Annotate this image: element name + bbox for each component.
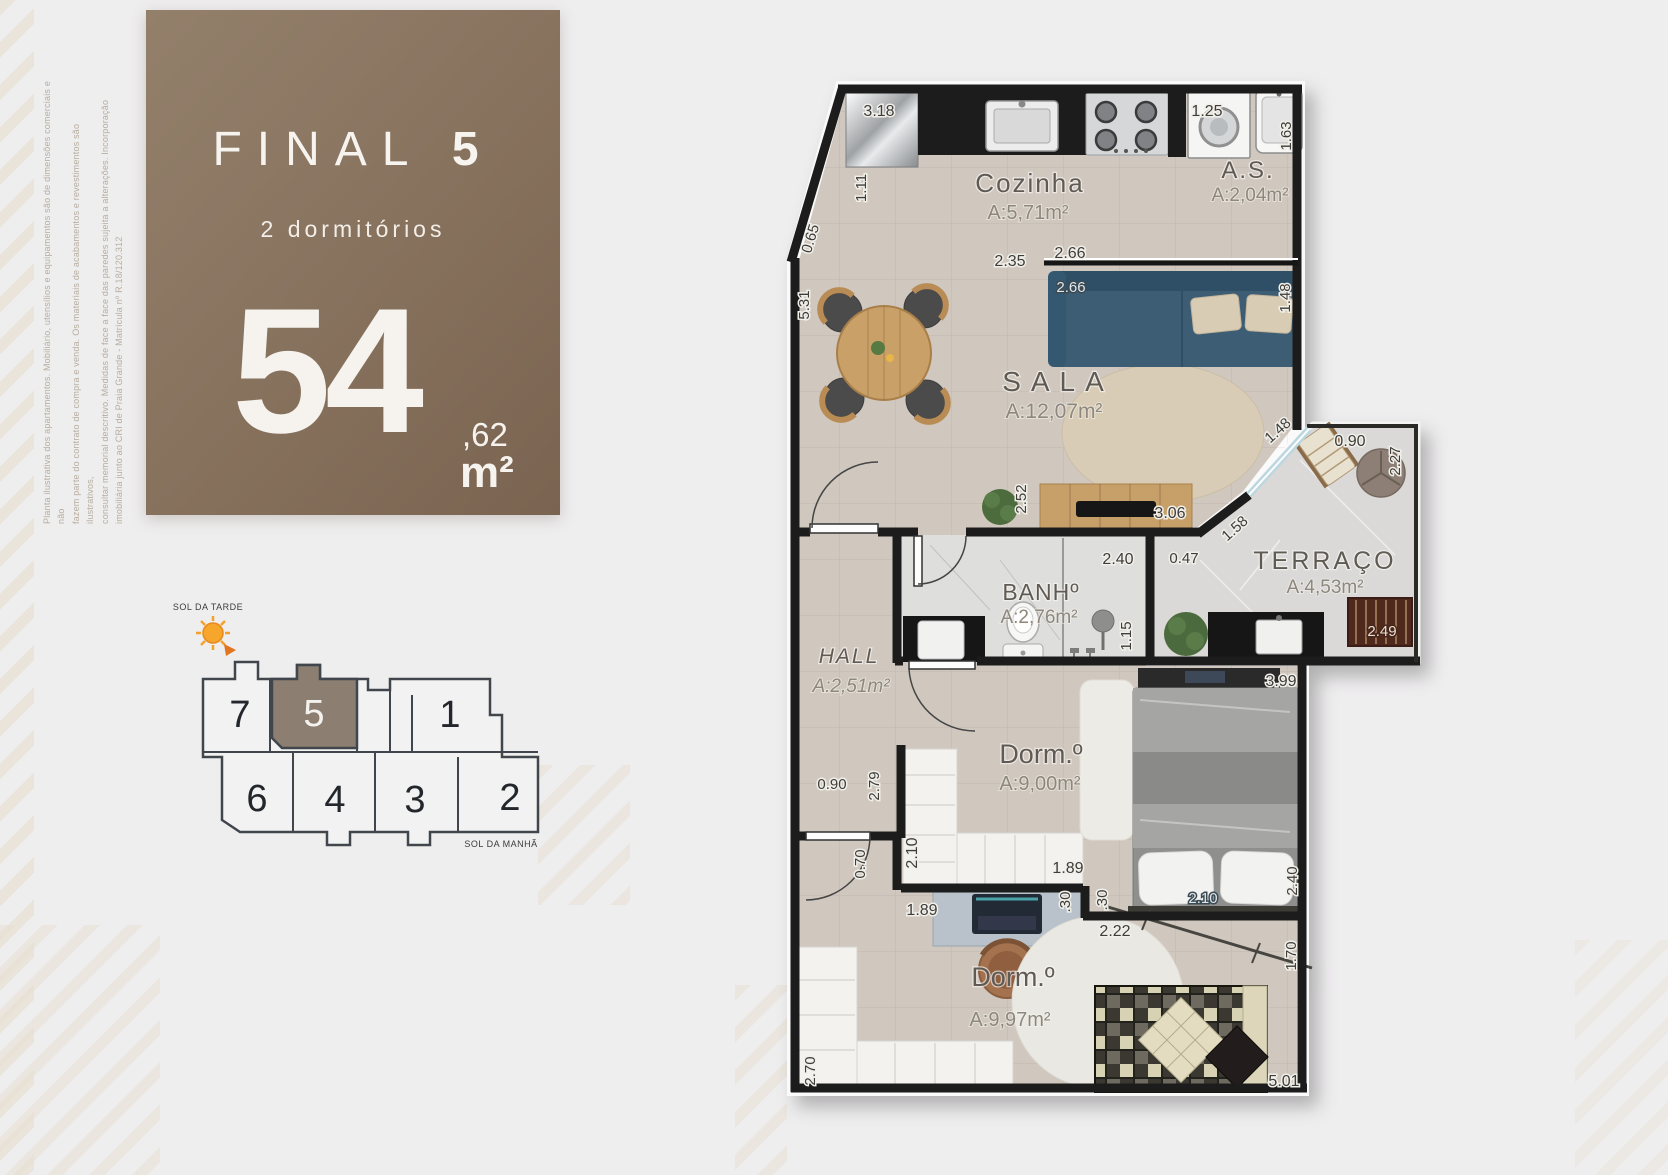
room-label-sala: SALA — [1002, 366, 1114, 397]
dim-tv-wall: 3.06 — [1154, 505, 1185, 522]
dim-terrace-right: 2.27 — [1387, 446, 1404, 475]
room-area-servico: A:2,04m² — [1211, 185, 1288, 206]
dim-dorm2-span: 2.22 — [1099, 923, 1130, 940]
dim-dorm2-left: 2.70 — [802, 1056, 819, 1085]
kitchen-faucet — [1019, 101, 1026, 108]
dim-service-side: 1.63 — [1278, 121, 1295, 150]
room-label-hall: HALL — [819, 645, 880, 668]
dim-dorm2-right: 1.70 — [1283, 941, 1300, 970]
dim-dorm1-width: 3.99 — [1265, 673, 1296, 690]
room-area-banheiro: A:2,76m² — [1000, 607, 1077, 628]
dim-kitchen-fridge: 3.18 — [863, 103, 894, 120]
dim-sofa-wall: 2.66 — [1056, 279, 1085, 296]
dim-terrace-wall: 0.47 — [1169, 550, 1198, 567]
kitchen-sink-basin — [994, 109, 1050, 143]
dim-barbecue: 2.49 — [1367, 623, 1396, 640]
dim-washer: 1.25 — [1191, 103, 1222, 120]
dim-wardrobe1-depth: 2.10 — [904, 837, 921, 868]
dim-sala-depth: 2.52 — [1013, 484, 1030, 513]
room-area-cozinha: A:5,71m² — [987, 202, 1068, 224]
dim-step-a: .30 — [1057, 892, 1074, 913]
room-area-dorm1: A:9,00m² — [999, 773, 1080, 795]
dim-sala-right: 1.48 — [1277, 283, 1294, 312]
dim-bed1-length: 2.10 — [1188, 890, 1217, 907]
bed-dorm1 — [1128, 688, 1305, 918]
room-area-terraco: A:4,53m² — [1286, 577, 1363, 598]
room-area-dorm2: A:9,97m² — [969, 1009, 1050, 1031]
dim-wardrobe1-width: 1.89 — [1052, 860, 1083, 877]
dim-dorm1-entry: 2.79 — [866, 771, 883, 800]
dim-kitchen-span-a: 2.35 — [994, 253, 1025, 270]
dim-hall-width: 0.90 — [817, 776, 846, 793]
bath-door — [914, 536, 922, 586]
plant-terrace — [1164, 612, 1208, 656]
tv — [1076, 501, 1156, 517]
dim-kitchen-span-b: 2.66 — [1054, 245, 1085, 262]
entry-door — [810, 524, 878, 533]
dorm1-door — [909, 661, 975, 669]
room-area-sala: A:12,07m² — [1006, 400, 1103, 423]
washing-machine-drum — [1210, 118, 1228, 136]
sofa-back — [1048, 271, 1300, 291]
room-label-servico: A.S. — [1221, 157, 1274, 184]
counter-divider — [1168, 89, 1186, 157]
room-label-terraco: TERRAÇO — [1253, 547, 1396, 575]
room-label-cozinha: Cozinha — [975, 168, 1084, 198]
dorm2-door — [806, 832, 870, 840]
dim-dorm2-width: 5.01 — [1268, 1073, 1299, 1090]
dim-bath-width: 2.40 — [1102, 551, 1133, 568]
room-label-dorm2: Dorm.º — [971, 962, 1054, 992]
room-label-dorm1: Dorm.º — [999, 739, 1082, 769]
dim-kitchen-fridge-depth: 1.11 — [853, 174, 870, 202]
bath-sink — [918, 621, 964, 659]
sofa-pillow — [1190, 294, 1242, 335]
rug-dorm1 — [1080, 680, 1134, 840]
terrace-sink — [1256, 620, 1302, 654]
room-area-hall: A:2,51m² — [811, 676, 890, 697]
dim-step-b: .30 — [1094, 890, 1111, 911]
laptop — [972, 894, 1042, 934]
dim-sala-left: 5.31 — [796, 290, 813, 319]
dim-dorm1-depth: 2.40 — [1284, 866, 1301, 895]
dim-corridor-step: 0.70 — [852, 849, 869, 878]
bed-dorm2 — [1095, 986, 1268, 1092]
terrace-faucet — [1276, 615, 1282, 621]
dorm1-shelf-item — [1185, 671, 1225, 683]
dim-desk-wall: 1.89 — [906, 902, 937, 919]
dim-bath-depth: 1.15 — [1118, 621, 1135, 650]
room-label-banheiro: BANHº — [1002, 579, 1079, 605]
table-plant — [871, 341, 885, 355]
floorplan: Cozinha A:5,71m² A.S. A:2,04m² SALA A:12… — [0, 0, 1668, 1175]
dim-terrace-top: 0.90 — [1334, 433, 1365, 450]
